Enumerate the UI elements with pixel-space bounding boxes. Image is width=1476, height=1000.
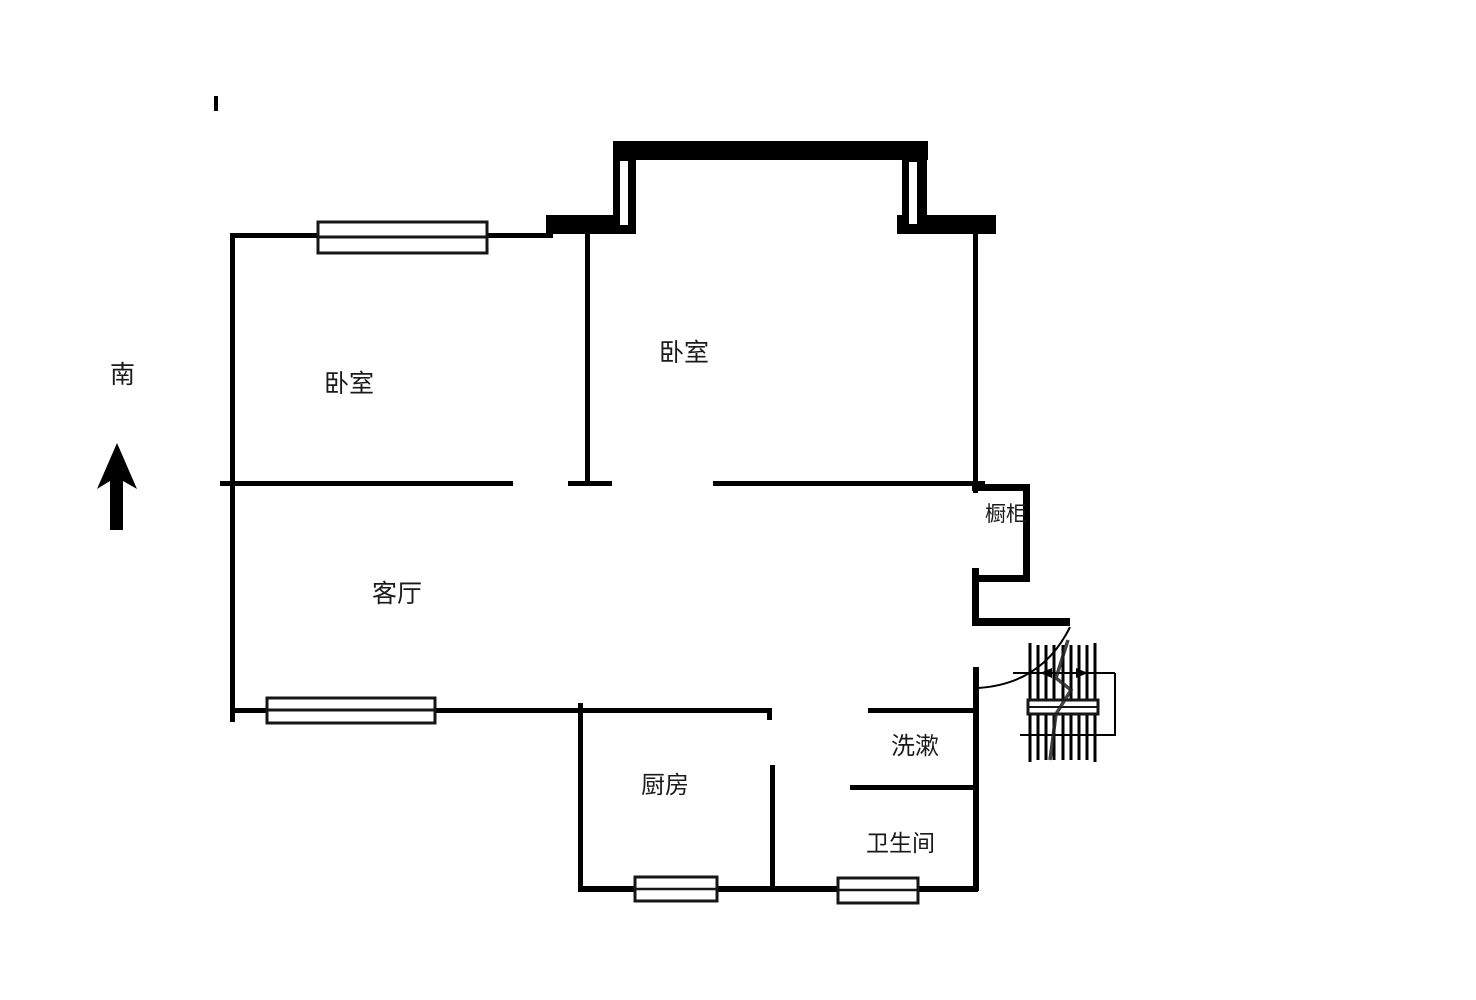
- wall-livingroom-bottom-seg2: [868, 708, 975, 713]
- wall-middle-seg3: [713, 481, 985, 486]
- staircase-icon: [1013, 640, 1115, 762]
- room-label-kitchen: 厨房: [641, 772, 689, 799]
- compass-south-label: 南: [110, 361, 135, 389]
- wall-kitchen-left: [578, 703, 583, 891]
- wall-bedroom-divider: [585, 234, 590, 483]
- window-living-room: [267, 698, 435, 723]
- bay-window: [546, 141, 996, 234]
- window-bathroom: [838, 878, 918, 903]
- wall-kitchen-interior: [770, 765, 775, 891]
- floor-plan-drawing: 南 卧室 卧室 客厅 橱柜 洗漱 厨房 卫生间: [0, 0, 1476, 1000]
- window-kitchen: [635, 877, 717, 901]
- window-bedroom-left: [318, 222, 487, 253]
- floor-plan-page: 南 卧室 卧室 客厅 橱柜 洗漱 厨房 卫生间: [0, 0, 1476, 1000]
- room-label-bedroom-left: 卧室: [324, 370, 374, 398]
- room-label-wash-area: 洗漱: [891, 733, 939, 760]
- room-label-cabinet: 橱柜: [985, 503, 1027, 526]
- north-arrow-icon: [97, 443, 137, 530]
- walls: [220, 233, 985, 892]
- wall-right-lower: [973, 667, 979, 891]
- wall-left-exterior: [230, 233, 235, 722]
- wall-wash-bath-divider: [850, 785, 975, 790]
- room-label-living-room: 客厅: [372, 580, 422, 608]
- room-labels: 卧室 卧室 客厅 橱柜 洗漱 厨房 卫生间: [324, 339, 1027, 856]
- cabinet-wall-stub: [972, 568, 979, 623]
- bay-left-window-slit: [620, 161, 628, 225]
- cabinet-wall-top: [972, 484, 1030, 491]
- room-label-bedroom-right: 卧室: [659, 339, 709, 367]
- reference-tick: [214, 96, 218, 111]
- room-label-bathroom: 卫生间: [866, 830, 935, 856]
- entry-wall-thick: [972, 618, 1070, 626]
- windows: [267, 222, 918, 903]
- cabinet-wall-bottom: [972, 575, 1030, 582]
- bay-right-window-slit: [909, 162, 917, 224]
- wall-right-upper: [973, 233, 978, 493]
- wall-middle-seg1: [220, 481, 513, 486]
- bay-top-wall: [613, 141, 928, 160]
- wall-middle-seg2: [568, 481, 612, 486]
- wall-tick-kitchen-door: [767, 708, 772, 720]
- cabinet-wall-right: [1023, 484, 1030, 582]
- compass: 南: [97, 361, 137, 530]
